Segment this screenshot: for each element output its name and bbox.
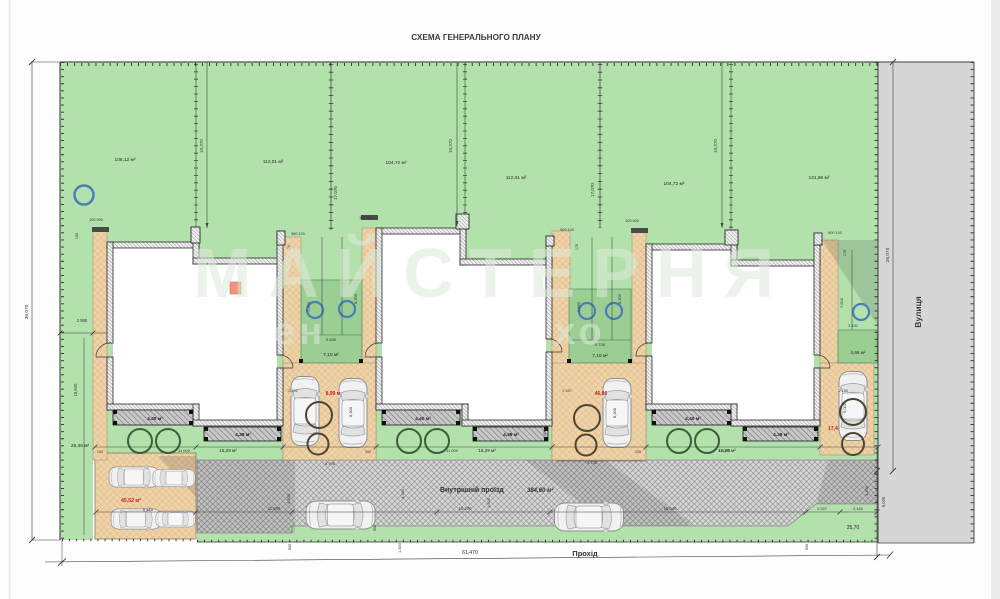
svg-text:4,40 м²: 4,40 м²	[147, 416, 163, 422]
svg-text:100 900: 100 900	[89, 218, 103, 222]
svg-text:4,40 м²: 4,40 м²	[685, 416, 701, 422]
svg-text:6 475: 6 475	[143, 507, 154, 512]
svg-text:3 430: 3 430	[848, 324, 858, 328]
svg-text:4,330: 4,330	[400, 488, 405, 499]
svg-text:45,52 м²: 45,52 м²	[121, 498, 141, 504]
svg-text:10,370: 10,370	[448, 139, 453, 153]
svg-text:500: 500	[805, 544, 809, 550]
svg-text:100: 100	[75, 233, 79, 239]
svg-text:100 900: 100 900	[359, 216, 373, 220]
svg-text:6,003: 6,003	[842, 402, 847, 413]
svg-text:Внутрішній проїзд: Внутрішній проїзд	[440, 486, 504, 494]
svg-text:4,38 м²: 4,38 м²	[503, 432, 519, 438]
svg-text:СХЕМА ГЕНЕРАЛЬНОГО ПЛАНУ: СХЕМА ГЕНЕРАЛЬНОГО ПЛАНУ	[411, 33, 541, 42]
svg-text:15,648: 15,648	[664, 506, 677, 511]
svg-text:4,40 м²: 4,40 м²	[415, 416, 431, 422]
svg-text:10,370: 10,370	[199, 139, 204, 153]
svg-text:25,70: 25,70	[847, 525, 860, 531]
svg-text:хо: хо	[554, 311, 605, 353]
svg-text:МАЙСТЕРНЯ: МАЙСТЕРНЯ	[193, 233, 791, 312]
svg-text:7,10 м²: 7,10 м²	[592, 353, 608, 359]
svg-text:6,000: 6,000	[881, 496, 886, 507]
svg-text:25,35 м²: 25,35 м²	[71, 443, 90, 449]
svg-text:11 000: 11 000	[446, 448, 459, 453]
svg-text:7,500: 7,500	[839, 297, 844, 308]
svg-text:36,070: 36,070	[24, 304, 30, 319]
svg-text:16,29 м²: 16,29 м²	[219, 448, 237, 453]
svg-text:10,370: 10,370	[713, 139, 718, 153]
svg-text:Вулиця: Вулиця	[913, 296, 923, 328]
svg-text:19,600: 19,600	[73, 383, 78, 396]
svg-text:112,01 м²: 112,01 м²	[506, 175, 527, 181]
svg-text:2 167: 2 167	[562, 389, 572, 393]
svg-text:2,000: 2,000	[543, 429, 547, 439]
svg-text:1,500: 1,500	[486, 497, 491, 508]
svg-text:8,99 м: 8,99 м	[326, 391, 341, 397]
svg-text:17,070: 17,070	[333, 186, 338, 200]
svg-text:26,070: 26,070	[885, 247, 891, 262]
svg-text:4,38 м²: 4,38 м²	[235, 432, 251, 438]
svg-text:112,01 м²: 112,01 м²	[263, 159, 284, 165]
svg-text:900 100: 900 100	[560, 228, 574, 232]
svg-text:2,160: 2,160	[853, 506, 864, 511]
svg-text:ен: ен	[274, 311, 326, 353]
svg-text:61,470: 61,470	[462, 550, 478, 556]
svg-text:100: 100	[97, 450, 103, 454]
svg-text:10,200: 10,200	[459, 506, 472, 511]
svg-text:4,38 м²: 4,38 м²	[773, 432, 789, 438]
svg-text:100: 100	[365, 450, 371, 454]
svg-text:8,300: 8,300	[348, 406, 353, 417]
svg-text:5 835: 5 835	[326, 337, 337, 342]
svg-text:5 795: 5 795	[325, 461, 336, 466]
svg-text:121,96 м²: 121,96 м²	[809, 175, 830, 181]
svg-text:100: 100	[635, 450, 641, 454]
svg-text:4,500: 4,500	[286, 493, 291, 504]
svg-text:11 000: 11 000	[178, 448, 191, 453]
svg-text:4,66 м²: 4,66 м²	[851, 350, 866, 355]
svg-text:17,070: 17,070	[590, 183, 595, 197]
svg-text:500: 500	[373, 525, 377, 531]
svg-text:46,06: 46,06	[595, 391, 608, 397]
svg-text:2,927: 2,927	[817, 506, 828, 511]
svg-text:104,72 м²: 104,72 м²	[664, 181, 685, 187]
svg-text:2 102: 2 102	[288, 389, 298, 393]
svg-text:8,300: 8,300	[612, 407, 617, 418]
svg-text:Прохід: Прохід	[572, 549, 598, 558]
svg-text:500: 500	[288, 544, 292, 550]
svg-text:2 135: 2 135	[838, 389, 848, 393]
svg-text:2 950: 2 950	[77, 318, 88, 323]
svg-text:1,300: 1,300	[398, 543, 402, 553]
svg-text:100 900: 100 900	[625, 219, 639, 223]
svg-text:384,60 м²: 384,60 м²	[527, 487, 554, 494]
svg-text:4,330: 4,330	[864, 485, 869, 496]
svg-text:170: 170	[843, 250, 847, 256]
svg-text:11,860: 11,860	[268, 506, 281, 511]
svg-text:17,4: 17,4	[828, 426, 838, 432]
svg-text:16,29 м²: 16,29 м²	[478, 448, 496, 453]
svg-text:106,12 м²: 106,12 м²	[115, 157, 136, 163]
svg-text:900 100: 900 100	[828, 231, 842, 235]
svg-text:104,72 м²: 104,72 м²	[386, 160, 407, 166]
svg-text:11 000: 11 000	[718, 448, 731, 453]
